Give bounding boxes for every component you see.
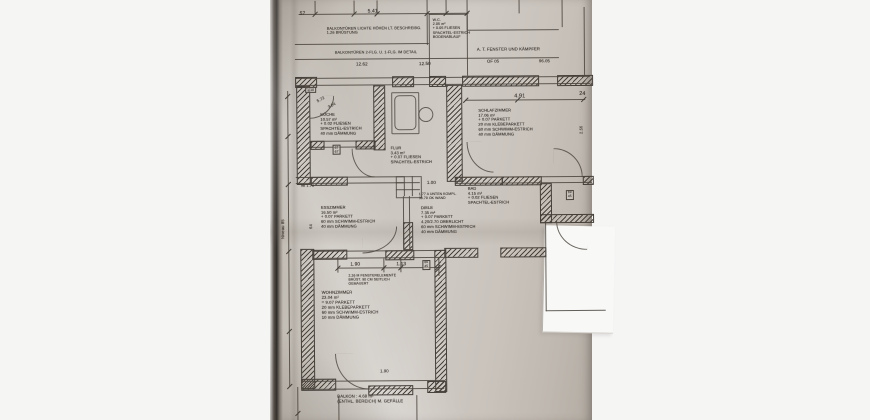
- plan-label: DIELE 7.35 m² + 0.07 PARKETT 4.20/2.70 O…: [421, 206, 476, 235]
- plan-line: [295, 43, 429, 45]
- photo-background: 575.41BALKONTÜREN LICHTE HÖHEN LT. BESCH…: [0, 0, 870, 420]
- wall-segment: [502, 176, 542, 185]
- plan-label: 1.90: [350, 263, 360, 269]
- floor-plan-drawing: 575.41BALKONTÜREN LICHTE HÖHEN LT. BESCH…: [0, 0, 870, 420]
- plan-label: 64: [309, 224, 314, 229]
- plan-label: Niveau 85: [281, 219, 286, 239]
- plan-line: [546, 310, 606, 311]
- plan-label: 4.91: [514, 93, 525, 100]
- wall-segment: [500, 247, 546, 257]
- plan-label: W.C. 2.05 m² + 0.05 FLIESEN SPACHTEL-EST…: [433, 18, 470, 39]
- plan-line: [416, 395, 417, 420]
- plan-label: 12.62: [356, 61, 368, 66]
- wall-segment: [455, 177, 503, 186]
- door-arc: [554, 148, 583, 177]
- plan-label: 5.41: [368, 9, 378, 15]
- plan-line: [301, 380, 444, 382]
- plan-label: KÜCHE 10.57 m² + 0.02 FLIESEN SPACHTEL-E…: [320, 113, 361, 137]
- wall-segment: [446, 85, 463, 182]
- plan-label: 96.05: [539, 59, 550, 64]
- plan-label: 57: [300, 12, 306, 18]
- plan-label: 12.50: [419, 61, 431, 66]
- plan-label: 1.90: [380, 369, 389, 374]
- plan-label: BALKONTÜREN 2-FLG. U. 1-FLG. IM DETAIL: [335, 50, 417, 55]
- plan-line: [296, 176, 404, 178]
- plan-label: BALKONTÜREN LICHTE HÖHEN LT. BESCHREIBG.…: [327, 26, 422, 36]
- plan-label: 3.04: [327, 102, 336, 110]
- plan-line: [297, 387, 298, 420]
- plan-label: OF 05: [487, 60, 499, 65]
- plan-label: 1.13: [396, 262, 406, 268]
- dimension-tick: [287, 384, 293, 390]
- fixture-outline: [394, 95, 416, 130]
- plan-label: SCHLAFZIMMER 17.06 m² + 0.07 PARKETT 20 …: [478, 108, 533, 137]
- plan-line: [312, 257, 444, 259]
- wall-segment: [434, 250, 447, 392]
- plan-label: 2.56: [579, 126, 584, 134]
- plan-line: [403, 196, 404, 248]
- wall-segment: [311, 141, 325, 150]
- plan-line: [429, 14, 467, 15]
- plan-line: [467, 29, 559, 31]
- plan-label: A. T. FENSTER UND KÄMPFER: [477, 47, 540, 52]
- wall-segment: [311, 177, 348, 186]
- plan-label: 69 45: [566, 190, 574, 200]
- plan-label: WOHNZIMMER 23.04 m² = 9.07 PARKETT 20 mm…: [322, 290, 379, 320]
- plan-line: [545, 221, 547, 311]
- wall-segment: [300, 249, 315, 389]
- plan-line: [429, 14, 430, 76]
- wall-segment: [583, 176, 594, 185]
- plan-label: 67 67: [333, 145, 341, 155]
- plan-label: BALKON : 4.68 m² (ENTHL. BEREICH) M. GEF…: [337, 394, 403, 404]
- fixture-outline: [418, 107, 433, 122]
- plan-label: 24: [579, 91, 585, 98]
- plan-label: 66 45: [422, 260, 430, 270]
- dimension-tick: [581, 97, 587, 103]
- door-arc: [352, 148, 375, 177]
- wall-segment: [444, 248, 478, 258]
- plan-label: 1.10: [305, 87, 316, 93]
- plan-label: 1.00: [427, 180, 436, 185]
- door-arc: [335, 353, 369, 389]
- plan-label: 2.26 M FENSTERELEMENTE BRÜST. 90 CM SEIT…: [348, 273, 396, 285]
- plan-label: ESSZIMMER 16.50 m² + 0.07 PARKETT 60 mm …: [321, 205, 375, 229]
- door-arc: [467, 142, 494, 173]
- plan-line: [427, 0, 428, 45]
- plan-label: BAD 4.15 m² + 0.02 FLIESEN SPACHTEL-ESTR…: [468, 186, 509, 205]
- plan-label: 96 1.76: [301, 184, 314, 189]
- plan-line: [519, 0, 520, 13]
- plan-line: [409, 196, 410, 248]
- plan-line: [562, 0, 563, 27]
- door-arc: [556, 221, 587, 250]
- plan-line: [584, 7, 585, 75]
- plan-line: [295, 57, 559, 60]
- plan-label: 1.77 A UNTEN KOMPL. 36.70 OK WAND: [419, 192, 457, 200]
- plan-label: FLUR 3.43 m² + 0.07 FLIESEN SPACHTEL-EST…: [391, 146, 432, 165]
